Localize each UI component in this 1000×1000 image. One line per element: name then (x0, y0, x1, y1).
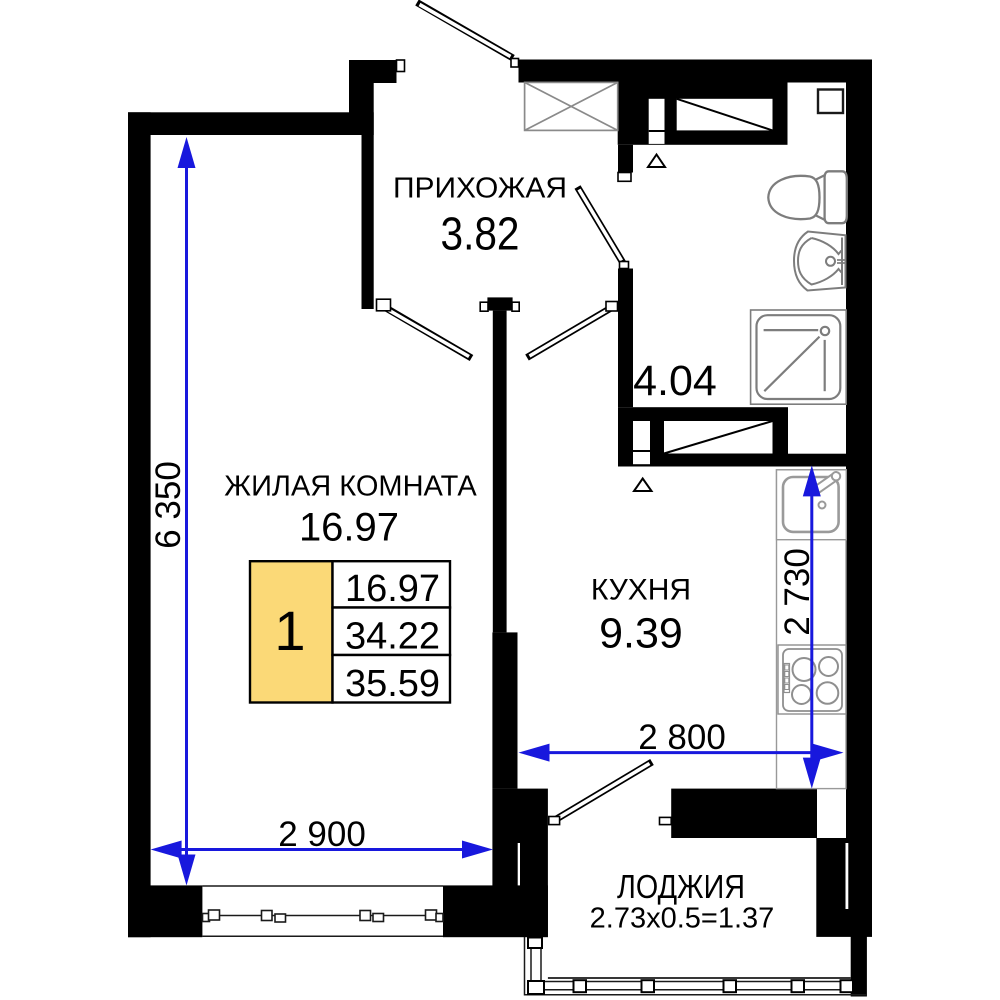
svg-text:ЛОДЖИЯ: ЛОДЖИЯ (617, 868, 745, 905)
svg-text:9.39: 9.39 (599, 610, 683, 658)
svg-text:2 900: 2 900 (278, 815, 366, 854)
svg-text:ПРИХОЖАЯ: ПРИХОЖАЯ (393, 173, 567, 205)
svg-text:6 350: 6 350 (149, 461, 188, 549)
svg-text:ЖИЛАЯ КОМНАТА: ЖИЛАЯ КОМНАТА (224, 471, 477, 503)
svg-text:16.97: 16.97 (299, 506, 399, 550)
svg-text:2 730: 2 730 (778, 548, 817, 636)
svg-text:35.59: 35.59 (345, 663, 440, 705)
svg-text:34.22: 34.22 (345, 616, 440, 658)
svg-text:2.73х0.5=1.37: 2.73х0.5=1.37 (590, 903, 775, 935)
svg-text:1: 1 (274, 599, 305, 662)
svg-text:4.04: 4.04 (633, 357, 717, 405)
svg-text:16.97: 16.97 (345, 568, 440, 610)
svg-text:2 800: 2 800 (638, 718, 726, 757)
svg-text:3.82: 3.82 (441, 208, 520, 260)
svg-text:КУХНЯ: КУХНЯ (591, 574, 691, 607)
